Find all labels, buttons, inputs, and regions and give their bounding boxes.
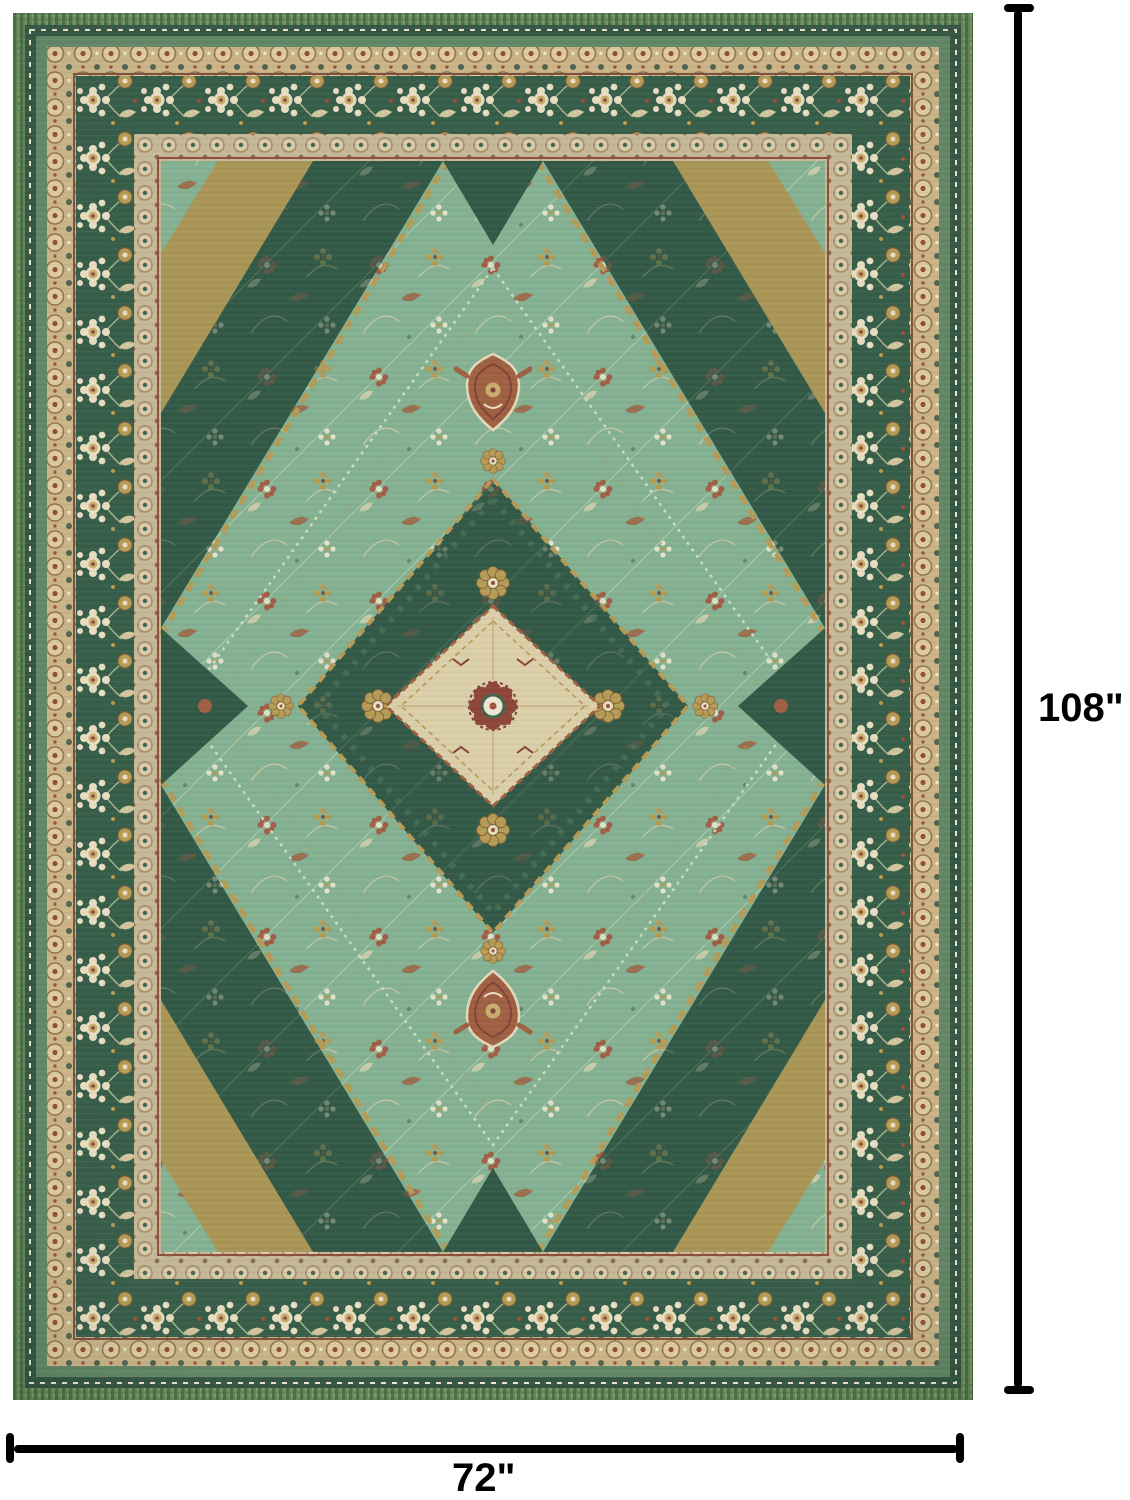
rug-artwork: [13, 13, 973, 1400]
width-line-right-cap: [956, 1433, 964, 1463]
width-line-bar: [14, 1445, 958, 1453]
product-image: 108" 72": [0, 0, 1130, 1500]
width-line-left-cap: [6, 1433, 14, 1463]
height-line-bottom-cap: [1004, 1386, 1034, 1394]
height-line-bar: [1014, 10, 1022, 1388]
height-dimension-label: 108": [1038, 688, 1124, 728]
rug-lighting-vignette: [13, 13, 973, 1400]
width-dimension-label: 72": [452, 1458, 515, 1498]
rug-image: [13, 13, 973, 1400]
